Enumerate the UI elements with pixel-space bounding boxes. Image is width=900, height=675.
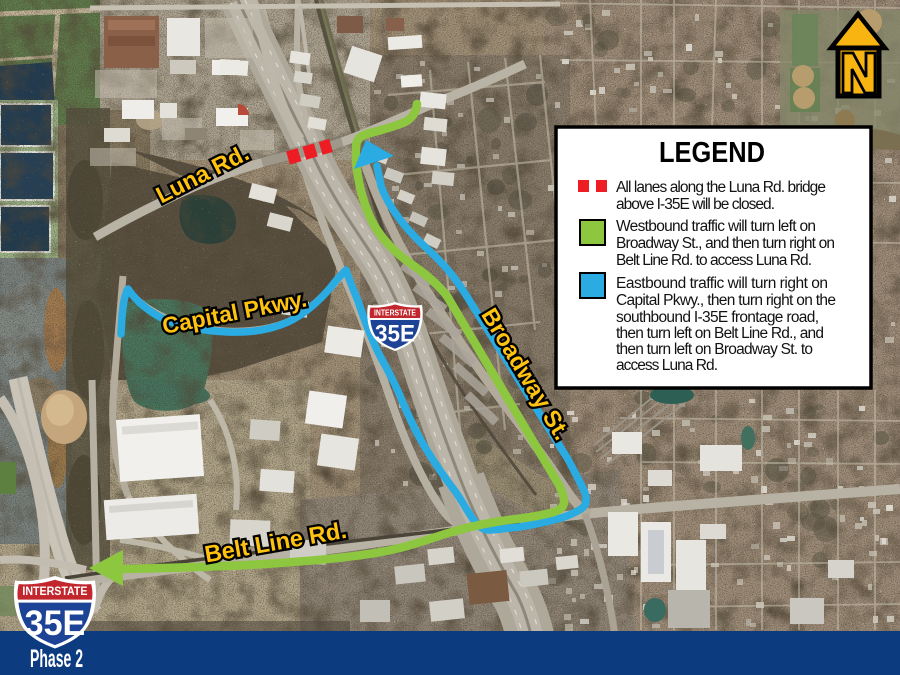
svg-text:Broadway St., and then turn ri: Broadway St., and then turn right on — [616, 235, 835, 252]
svg-text:then turn left on Belt Line Rd: then turn left on Belt Line Rd., and — [616, 325, 824, 342]
svg-text:Belt Line Rd. to access Luna R: Belt Line Rd. to access Luna Rd. — [616, 252, 812, 269]
svg-text:Eastbound traffic will turn ri: Eastbound traffic will turn right on — [616, 275, 828, 292]
svg-text:access Luna Rd.: access Luna Rd. — [616, 357, 718, 374]
svg-text:then turn left on Broadway St.: then turn left on Broadway St. to — [616, 341, 813, 358]
svg-text:35E: 35E — [375, 321, 415, 348]
svg-text:35E: 35E — [25, 603, 86, 643]
svg-text:LEGEND: LEGEND — [659, 137, 765, 169]
svg-text:Capital Pkwy., then turn right: Capital Pkwy., then turn right on the — [616, 292, 836, 309]
svg-text:All lanes along the Luna Rd. b: All lanes along the Luna Rd. bridge — [616, 179, 826, 196]
svg-text:Westbound traffic will turn le: Westbound traffic will turn left on — [616, 218, 816, 235]
svg-text:above I-35E will be closed.: above I-35E will be closed. — [616, 196, 775, 213]
svg-text:Phase 2: Phase 2 — [30, 645, 83, 673]
svg-text:INTERSTATE: INTERSTATE — [22, 584, 87, 598]
svg-text:southbound I-35E frontage road: southbound I-35E frontage road, — [616, 309, 819, 326]
svg-text:INTERSTATE: INTERSTATE — [374, 309, 417, 318]
